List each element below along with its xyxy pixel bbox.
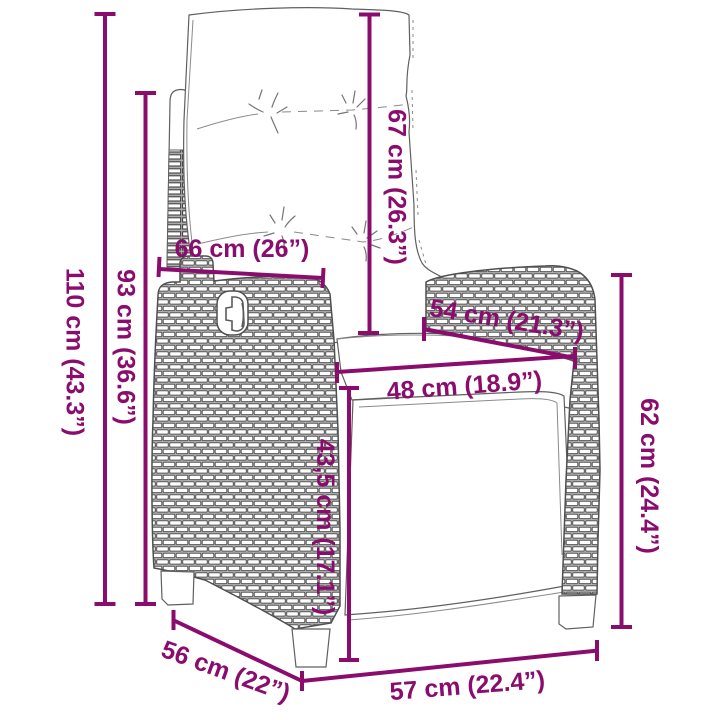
svg-text:62 cm (24.4”): 62 cm (24.4”) bbox=[635, 398, 663, 554]
svg-text:93 cm (36.6”): 93 cm (36.6”) bbox=[112, 269, 140, 425]
svg-text:110 cm (43.3”): 110 cm (43.3”) bbox=[61, 268, 89, 436]
svg-text:67 cm (26.3”): 67 cm (26.3”) bbox=[383, 109, 411, 265]
svg-text:66 cm (26”): 66 cm (26”) bbox=[175, 235, 310, 263]
svg-text:43,5 cm (17.1”): 43,5 cm (17.1”) bbox=[311, 439, 339, 616]
svg-text:57 cm (22.4”): 57 cm (22.4”) bbox=[389, 666, 546, 706]
